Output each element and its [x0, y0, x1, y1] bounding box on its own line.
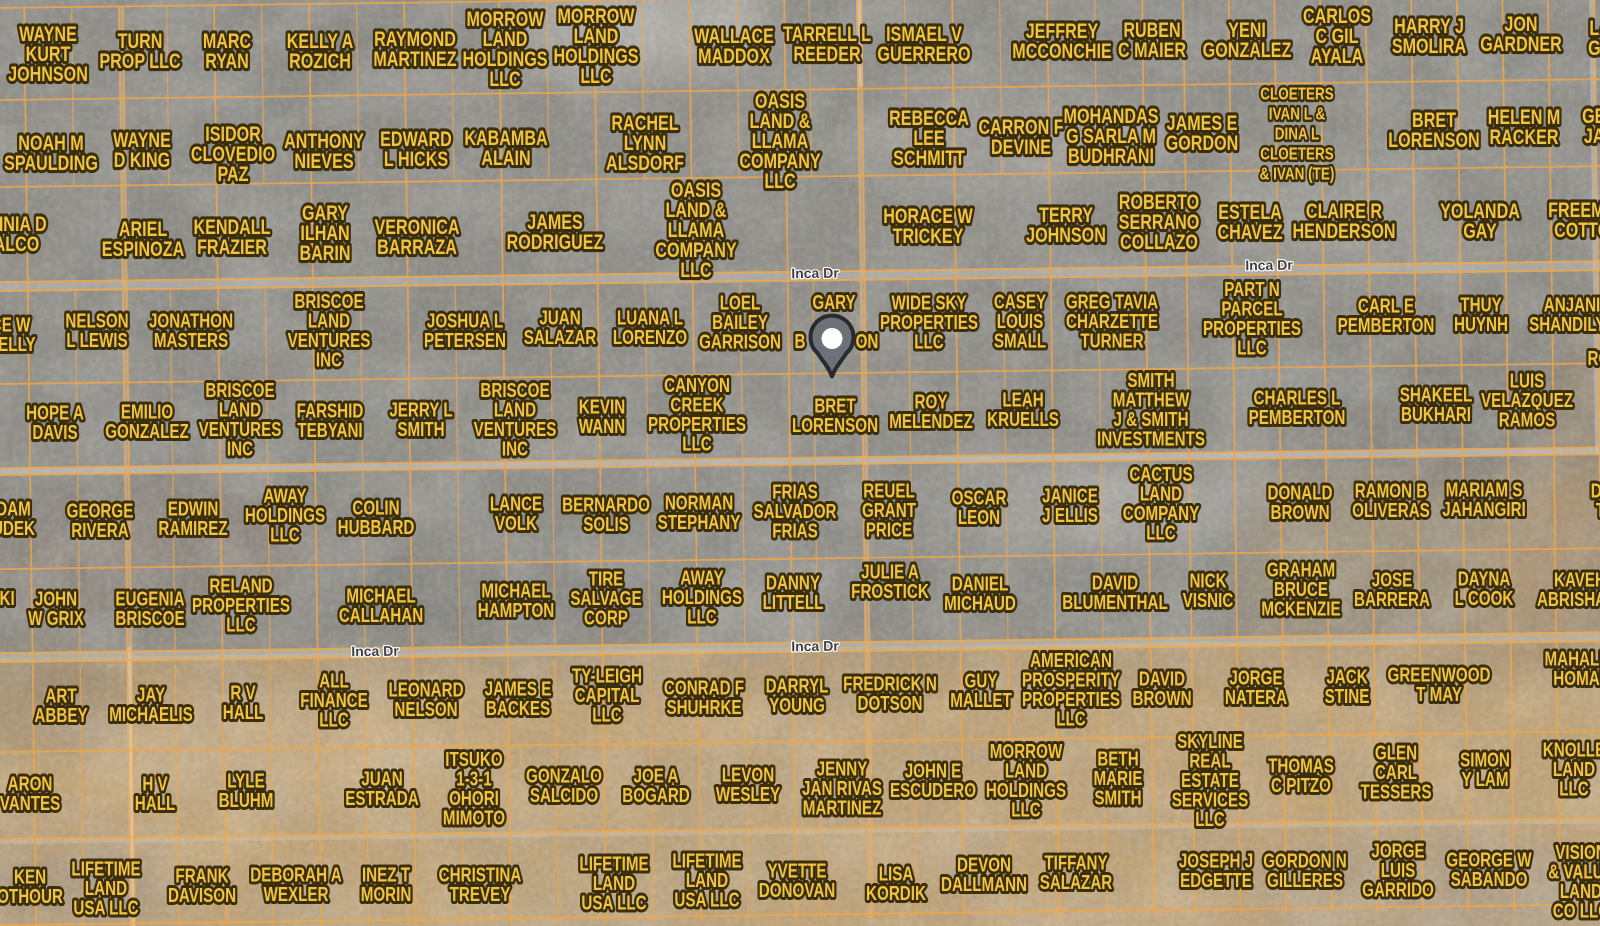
svg-text:HOPE ADAVIS: HOPE ADAVIS: [26, 401, 84, 443]
svg-text:ADAMDUDEK: ADAMDUDEK: [0, 497, 35, 539]
svg-text:GARYILHANBARIN: GARYILHANBARIN: [299, 202, 350, 266]
svg-text:GONZALOSALCIDO: GONZALOSALCIDO: [526, 764, 602, 806]
svg-text:GEORGE WSABANDO: GEORGE WSABANDO: [1446, 848, 1531, 890]
svg-text:DAVIDBROWN: DAVIDBROWN: [1132, 667, 1191, 709]
svg-text:NELSONL LEWIS: NELSONL LEWIS: [65, 309, 128, 351]
svg-text:LUANA LLORENZO: LUANA LLORENZO: [613, 306, 687, 348]
svg-text:ESTELACHAVEZ: ESTELACHAVEZ: [1217, 201, 1282, 245]
svg-text:THOMASC PITZO: THOMASC PITZO: [1268, 754, 1334, 796]
svg-text:EDWINRAMIREZ: EDWINRAMIREZ: [158, 497, 227, 539]
svg-text:CONRAD FSHUHRKE: CONRAD FSHUHRKE: [664, 676, 744, 718]
svg-text:ISMAEL VGUERRERO: ISMAEL VGUERRERO: [877, 23, 970, 67]
svg-text:MICHAELCALLAHAN: MICHAELCALLAHAN: [339, 584, 423, 626]
svg-text:JERRY LSMITH: JERRY LSMITH: [389, 398, 452, 440]
svg-text:GARY: GARY: [812, 291, 855, 314]
svg-text:DONALDBROWN: DONALDBROWN: [1268, 481, 1333, 523]
svg-text:FRANKDAVISON: FRANKDAVISON: [168, 864, 236, 906]
svg-text:GORDON NGILLERES: GORDON NGILLERES: [1263, 849, 1347, 891]
svg-text:CASEYLOUISSMALL: CASEYLOUISSMALL: [994, 291, 1046, 353]
svg-text:JOSEPH JEDGETTE: JOSEPH JEDGETTE: [1179, 849, 1253, 891]
svg-text:THUYHUYNH: THUYHUYNH: [1454, 293, 1508, 335]
svg-text:JONATHONMASTERS: JONATHONMASTERS: [149, 309, 233, 351]
svg-text:LANCEVOLK: LANCEVOLK: [490, 492, 542, 534]
svg-text:FREEMANCOTTON: FREEMANCOTTON: [1548, 199, 1600, 243]
svg-text:REUELGRANTPRICE: REUELGRANTPRICE: [862, 480, 916, 542]
svg-text:MARCRYAN: MARCRYAN: [203, 30, 252, 74]
svg-text:Inca Dr: Inca Dr: [791, 265, 839, 282]
svg-text:SIMONY LAM: SIMONY LAM: [1460, 748, 1510, 790]
svg-text:LEVONWESLEY: LEVONWESLEY: [716, 763, 780, 805]
svg-text:ROS: ROS: [1588, 347, 1600, 370]
svg-text:LEONARDNELSON: LEONARDNELSON: [388, 678, 463, 720]
svg-text:YVETTEDONOVAN: YVETTEDONOVAN: [759, 859, 836, 901]
svg-text:HELEN MRACKER: HELEN MRACKER: [1488, 106, 1561, 150]
svg-text:WALLACEMADDOX: WALLACEMADDOX: [694, 25, 774, 69]
svg-text:TARRELL LREEDER: TARRELL LREEDER: [783, 23, 871, 67]
svg-text:NICKVISNIC: NICKVISNIC: [1183, 569, 1234, 611]
svg-text:DARRYLYOUNG: DARRYLYOUNG: [766, 674, 829, 716]
svg-text:BETHMARIESMITH: BETHMARIESMITH: [1094, 748, 1143, 810]
svg-text:B: B: [795, 330, 806, 353]
svg-text:JOHNW GRIX: JOHNW GRIX: [28, 587, 84, 629]
svg-text:INEZ TMORIN: INEZ TMORIN: [361, 863, 412, 905]
svg-text:JACKSTINE: JACKSTINE: [1325, 665, 1370, 707]
svg-text:Inca Dr: Inca Dr: [791, 638, 839, 655]
svg-text:DEBORAH AWEXLER: DEBORAH AWEXLER: [250, 863, 342, 905]
svg-text:HARRY JSMOLIRA: HARRY JSMOLIRA: [1392, 15, 1467, 59]
svg-text:CLAIRE RHENDERSON: CLAIRE RHENDERSON: [1292, 200, 1395, 244]
svg-text:JAMES EBACKES: JAMES EBACKES: [485, 677, 552, 719]
svg-text:DANNYLITTELL: DANNYLITTELL: [763, 571, 824, 613]
svg-text:JULIE AFROSTICK: JULIE AFROSTICK: [851, 560, 929, 602]
svg-text:CARRON FDEVINE: CARRON FDEVINE: [978, 116, 1063, 160]
svg-text:TIFFANYSALAZAR: TIFFANYSALAZAR: [1040, 851, 1113, 893]
svg-text:MICHAELHAMPTON: MICHAELHAMPTON: [478, 579, 555, 621]
svg-text:FARSHIDTEBYANI: FARSHIDTEBYANI: [297, 399, 364, 441]
svg-text:KENDALLFRAZIER: KENDALLFRAZIER: [193, 216, 270, 260]
svg-text:MAHALLAHOMAN: MAHALLAHOMAN: [1544, 647, 1600, 689]
svg-text:ITSUKO1-3-1OHORIMIMOTO: ITSUKO1-3-1OHORIMIMOTO: [443, 748, 505, 829]
svg-text:OSCARLEON: OSCARLEON: [952, 486, 1007, 528]
svg-text:KELLY AROZICH: KELLY AROZICH: [287, 30, 354, 74]
svg-text:RAMON BOLIVERAS: RAMON BOLIVERAS: [1352, 479, 1430, 521]
svg-text:GEOJAR: GEOJAR: [1582, 105, 1600, 149]
svg-text:KEVINWANN: KEVINWANN: [579, 395, 625, 437]
svg-text:SKI: SKI: [0, 587, 15, 610]
svg-text:HORACE WTRICKEY: HORACE WTRICKEY: [883, 205, 973, 249]
svg-text:RUBENC MAIER: RUBENC MAIER: [1118, 19, 1186, 63]
svg-text:NORMANSTEPHANY: NORMANSTEPHANY: [658, 491, 741, 533]
svg-text:JAMES EGORDON: JAMES EGORDON: [1166, 112, 1239, 156]
svg-text:ON: ON: [856, 330, 879, 353]
svg-text:CHRISTINATREVEY: CHRISTINATREVEY: [439, 863, 522, 905]
svg-text:JOSHUA LPETERSEN: JOSHUA LPETERSEN: [424, 309, 506, 351]
svg-text:CHARLES LPEMBERTON: CHARLES LPEMBERTON: [1249, 386, 1346, 428]
svg-text:ARONVANTES: ARONVANTES: [0, 772, 60, 814]
svg-text:Inca Dr: Inca Dr: [351, 643, 399, 660]
svg-text:ENCE WONNELLY: ENCE WONNELLY: [0, 313, 36, 355]
svg-text:MOHANDASG SARLA MBUDHRANI: MOHANDASG SARLA MBUDHRANI: [1064, 105, 1159, 169]
svg-text:JANICEJ ELLIS: JANICEJ ELLIS: [1042, 484, 1098, 526]
svg-text:LADGAR: LADGAR: [1588, 17, 1600, 61]
svg-text:VERONICABARRAZA: VERONICABARRAZA: [374, 216, 459, 260]
svg-text:VISION& VALUELANDCO LLC: VISION& VALUELANDCO LLC: [1548, 841, 1600, 922]
svg-text:RAYMONDMARTINEZ: RAYMONDMARTINEZ: [373, 28, 457, 72]
svg-text:SHAKEELBUKHARI: SHAKEELBUKHARI: [1400, 383, 1473, 425]
svg-text:JORGENATERA: JORGENATERA: [1225, 666, 1287, 708]
svg-text:EUGENIABRISCOE: EUGENIABRISCOE: [115, 587, 184, 629]
svg-text:ROBERTOSERRANOCOLLAZO: ROBERTOSERRANOCOLLAZO: [1119, 191, 1200, 255]
svg-text:DAYNAL COOK: DAYNAL COOK: [1455, 567, 1514, 609]
svg-text:ANTHONYNIEVES: ANTHONYNIEVES: [284, 130, 364, 174]
svg-text:GEORGERIVERA: GEORGERIVERA: [67, 499, 134, 541]
svg-text:DANIELMICHAUD: DANIELMICHAUD: [944, 572, 1016, 614]
svg-text:WAYNED KING: WAYNED KING: [113, 129, 171, 173]
svg-text:JEFFREYMCCONCHIE: JEFFREYMCCONCHIE: [1012, 20, 1111, 64]
svg-text:MARIAM SJAHANGIRI: MARIAM SJAHANGIRI: [1442, 478, 1526, 520]
svg-text:Inca Dr: Inca Dr: [1245, 257, 1293, 274]
svg-text:EDWARDL HICKS: EDWARDL HICKS: [380, 128, 452, 172]
